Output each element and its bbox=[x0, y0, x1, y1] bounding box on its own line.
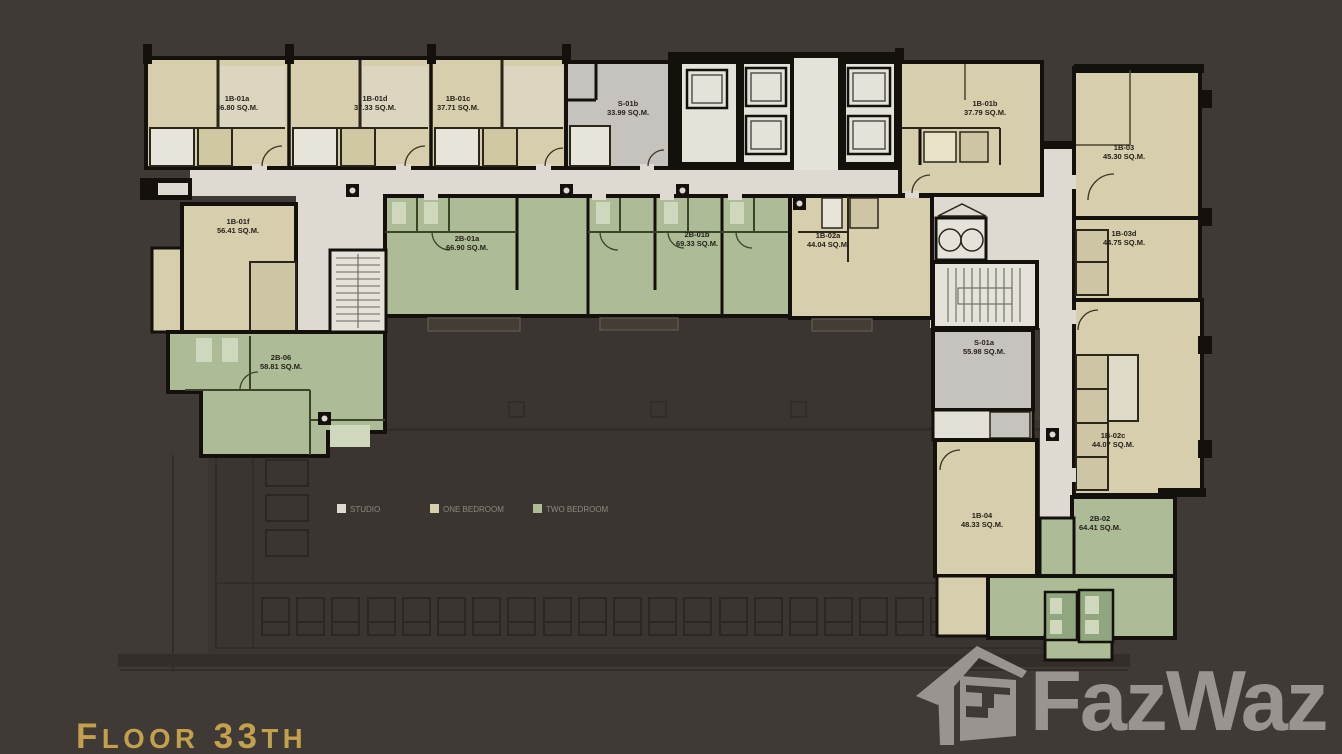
svg-text:ONE BEDROOM: ONE BEDROOM bbox=[443, 505, 504, 514]
svg-text:45.30 SQ.M.: 45.30 SQ.M. bbox=[1103, 152, 1145, 161]
svg-text:66.90 SQ.M.: 66.90 SQ.M. bbox=[446, 243, 488, 252]
svg-text:1B-04: 1B-04 bbox=[972, 511, 993, 520]
svg-text:1B-01a: 1B-01a bbox=[225, 94, 250, 103]
svg-text:2B-02: 2B-02 bbox=[1090, 514, 1110, 523]
svg-text:37.33 SQ.M.: 37.33 SQ.M. bbox=[354, 103, 396, 112]
svg-text:37.71 SQ.M.: 37.71 SQ.M. bbox=[437, 103, 479, 112]
svg-text:55.98 SQ.M.: 55.98 SQ.M. bbox=[963, 347, 1005, 356]
svg-text:FLOOR 33TH: FLOOR 33TH bbox=[76, 717, 307, 754]
svg-text:1B-01c: 1B-01c bbox=[446, 94, 471, 103]
svg-text:2B-06: 2B-06 bbox=[271, 353, 291, 362]
svg-text:1B-02a: 1B-02a bbox=[816, 231, 841, 240]
svg-text:1B-01f: 1B-01f bbox=[227, 217, 250, 226]
svg-text:2B-01b: 2B-01b bbox=[684, 230, 709, 239]
svg-text:56.41 SQ.M.: 56.41 SQ.M. bbox=[217, 226, 259, 235]
svg-text:36.80 SQ.M.: 36.80 SQ.M. bbox=[216, 103, 258, 112]
svg-text:STUDIO: STUDIO bbox=[350, 505, 380, 514]
svg-text:1B-01d: 1B-01d bbox=[362, 94, 387, 103]
svg-text:37.79 SQ.M.: 37.79 SQ.M. bbox=[964, 108, 1006, 117]
svg-text:44.04 SQ.M.: 44.04 SQ.M. bbox=[807, 240, 849, 249]
svg-text:1B-02c: 1B-02c bbox=[1101, 431, 1126, 440]
svg-text:1B-03d: 1B-03d bbox=[1111, 229, 1136, 238]
svg-text:44.75 SQ.M.: 44.75 SQ.M. bbox=[1103, 238, 1145, 247]
svg-text:1B-03: 1B-03 bbox=[1114, 143, 1134, 152]
svg-text:64.41 SQ.M.: 64.41 SQ.M. bbox=[1079, 523, 1121, 532]
svg-text:S-01b: S-01b bbox=[618, 99, 639, 108]
svg-text:44.07 SQ.M.: 44.07 SQ.M. bbox=[1092, 440, 1134, 449]
svg-text:1B-01b: 1B-01b bbox=[972, 99, 997, 108]
svg-text:2B-01a: 2B-01a bbox=[455, 234, 480, 243]
svg-text:FazWaz: FazWaz bbox=[1030, 654, 1327, 749]
svg-text:58.81 SQ.M.: 58.81 SQ.M. bbox=[260, 362, 302, 371]
svg-text:TWO BEDROOM: TWO BEDROOM bbox=[546, 505, 609, 514]
svg-text:S-01a: S-01a bbox=[974, 338, 995, 347]
svg-text:33.99 SQ.M.: 33.99 SQ.M. bbox=[607, 108, 649, 117]
svg-text:69.33 SQ.M.: 69.33 SQ.M. bbox=[676, 239, 718, 248]
svg-text:48.33 SQ.M.: 48.33 SQ.M. bbox=[961, 520, 1003, 529]
